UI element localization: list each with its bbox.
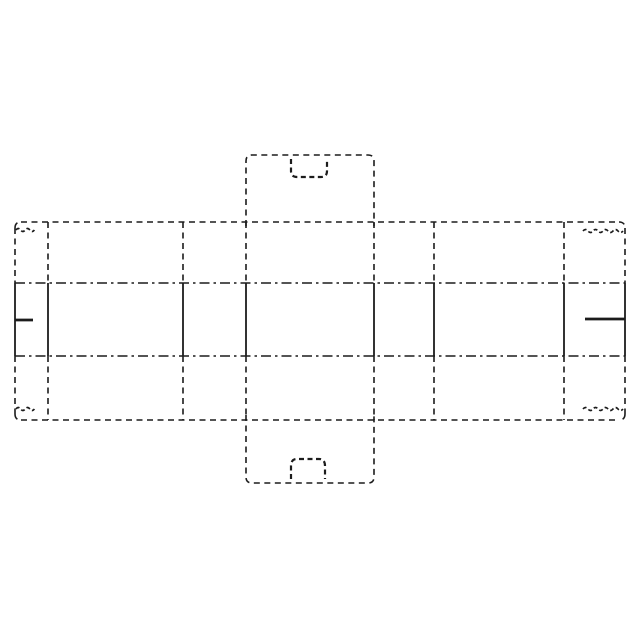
bottom-tab-outline — [246, 415, 374, 483]
serration-bottom-right — [583, 408, 623, 411]
corner-arc-bottom-right — [619, 414, 625, 420]
carton-blank-figure — [0, 0, 640, 640]
bottom-handle-cutout — [291, 459, 325, 479]
carton-blank-diagram — [0, 0, 640, 640]
serration-top-right — [583, 230, 623, 233]
serration-bottom-left — [16, 408, 34, 411]
top-handle-cutout — [291, 159, 327, 177]
serration-top-left — [16, 229, 34, 232]
corner-arc-top-right — [619, 222, 625, 228]
top-tab-outline — [246, 155, 374, 226]
corner-arc-top-left — [15, 222, 21, 228]
corner-arc-bottom-left — [15, 414, 21, 420]
